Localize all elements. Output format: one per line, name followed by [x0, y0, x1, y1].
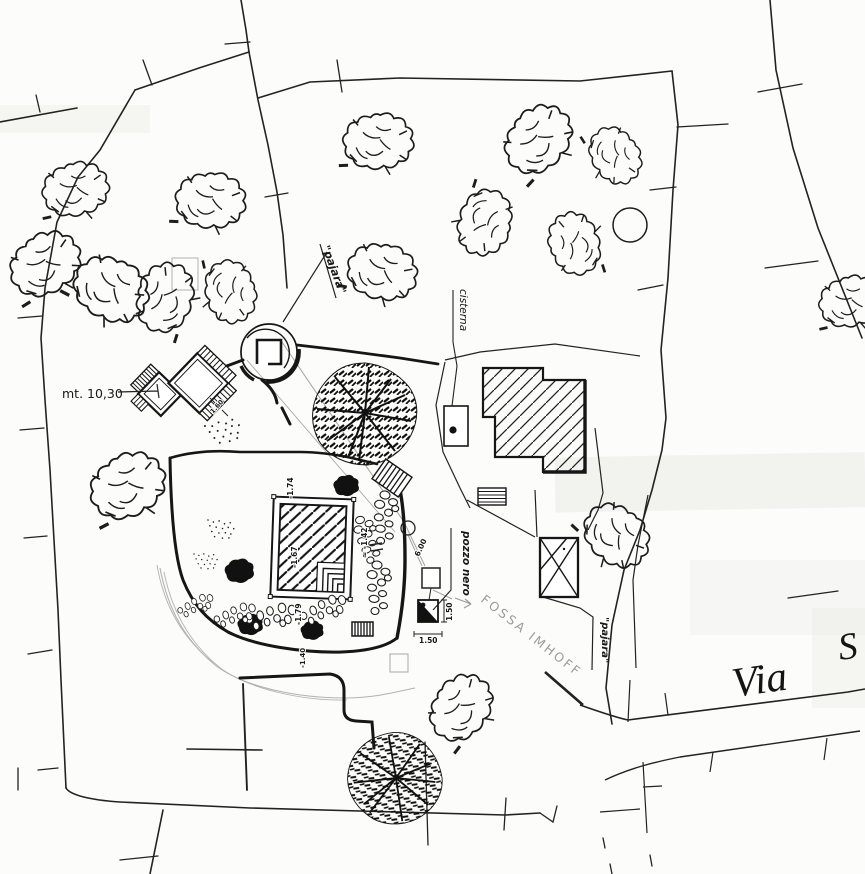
round-feature [613, 208, 647, 242]
tree [442, 179, 525, 266]
label-pajara-lower: "pajara" [599, 617, 610, 663]
planting-beds [193, 416, 243, 569]
dim-pozzo-width: 1.50 [419, 636, 438, 645]
road-via [545, 672, 865, 833]
tree [545, 209, 605, 278]
pajara-structure [241, 324, 299, 382]
label-pajara-upper: "pajara" [319, 244, 349, 296]
depth-path: -1.40 [299, 648, 307, 668]
dim-pozzo-height: 1.50 [445, 602, 454, 621]
pool [268, 495, 356, 602]
tree [122, 252, 210, 344]
scanned-site-plan-sheet: "pajara" "pajara" cisterna pozzo nero FO… [0, 0, 865, 874]
tree [168, 163, 252, 240]
pool-steps [316, 562, 344, 592]
drain-grate [352, 622, 373, 636]
tree [819, 275, 865, 329]
tree [42, 161, 110, 218]
tree [337, 230, 427, 315]
label-pozzo-nero: pozzo nero [460, 530, 472, 596]
depth-pool-inside: -1.67 [290, 546, 299, 568]
shrub [333, 475, 359, 496]
shrub [225, 559, 254, 583]
fossa-arrow-icon [455, 598, 471, 608]
building-steps [478, 488, 506, 505]
dim-building-width: mt. 10,30 [62, 386, 123, 401]
depth-pool-right: ≈ -1.42 [360, 527, 369, 558]
pine-tree [313, 363, 417, 465]
label-cisterna: cisterna [457, 289, 469, 331]
tree [82, 444, 175, 528]
pajara-lower-structure [540, 538, 578, 597]
label-via: Via [729, 654, 790, 707]
tree [415, 662, 508, 754]
tree [580, 119, 649, 193]
tree [338, 106, 419, 178]
depth-pool-top: -1.74 [286, 477, 295, 499]
dim-path-length: 6.00 [413, 537, 429, 558]
site-plan-drawing: "pajara" "pajara" cisterna pozzo nero FO… [0, 0, 865, 874]
tree [203, 260, 257, 324]
depth-pool-bottom: -1.79 [294, 603, 303, 625]
tree [490, 92, 588, 187]
